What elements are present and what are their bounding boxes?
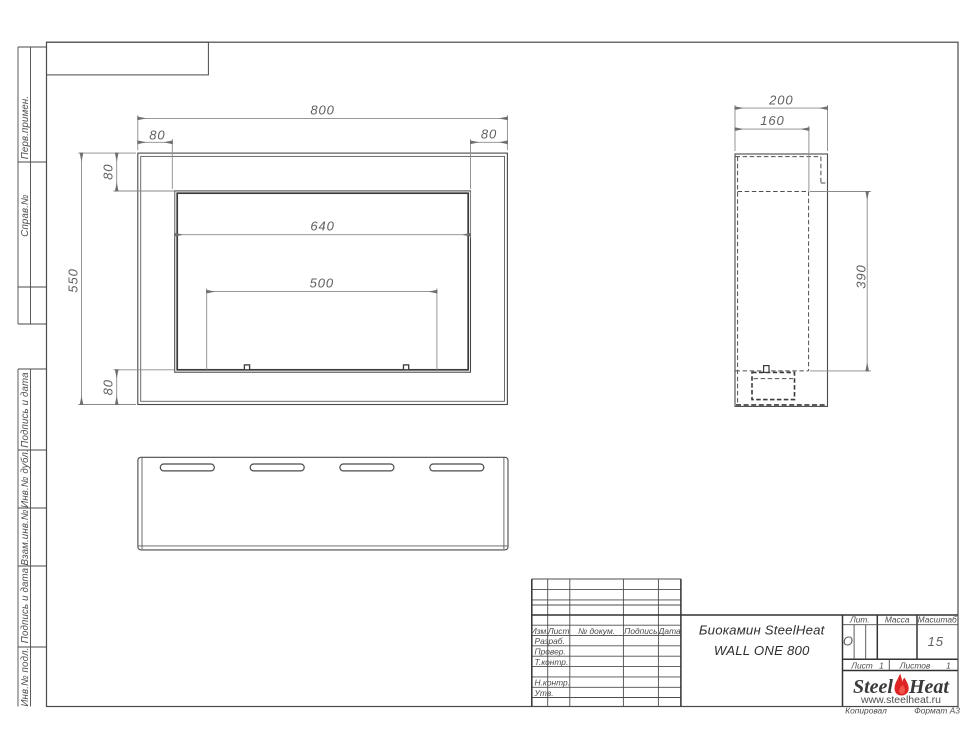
svg-text:80: 80 — [101, 164, 116, 180]
svg-text:www.steelheat.ru: www.steelheat.ru — [860, 694, 941, 706]
svg-text:Разраб.: Разраб. — [535, 636, 565, 646]
svg-text:Т.контр.: Т.контр. — [535, 657, 569, 667]
svg-text:Инв.№ дубл.: Инв.№ дубл. — [20, 449, 31, 508]
svg-text:Биокамин SteelHeat: Биокамин SteelHeat — [699, 623, 826, 638]
svg-text:1: 1 — [879, 660, 884, 670]
svg-text:Лит.: Лит. — [849, 615, 870, 625]
svg-text:1: 1 — [946, 660, 951, 670]
svg-text:Перв.примен.: Перв.примен. — [20, 96, 31, 160]
svg-text:Н.контр.: Н.контр. — [535, 678, 570, 688]
svg-text:Копировал: Копировал — [845, 706, 887, 716]
svg-text:800: 800 — [310, 103, 334, 118]
svg-text:Справ.№: Справ.№ — [20, 194, 31, 237]
svg-text:Дата: Дата — [658, 626, 681, 636]
svg-text:Инв.№ подл.: Инв.№ подл. — [20, 647, 31, 706]
svg-text:Масштаб: Масштаб — [918, 615, 957, 625]
svg-text:Провер.: Провер. — [535, 647, 566, 657]
svg-text:Лист: Лист — [850, 660, 873, 670]
svg-text:500: 500 — [310, 276, 334, 291]
svg-text:О: О — [843, 634, 854, 649]
svg-text:Подпись и дата: Подпись и дата — [20, 372, 31, 448]
svg-text:WALL ONE 800: WALL ONE 800 — [714, 643, 810, 658]
svg-text:Формат А3: Формат А3 — [914, 706, 960, 716]
svg-text:80: 80 — [149, 127, 165, 142]
svg-text:80: 80 — [481, 127, 497, 142]
svg-text:Утв.: Утв. — [534, 688, 554, 698]
svg-text:550: 550 — [66, 268, 81, 292]
svg-text:200: 200 — [768, 92, 793, 107]
svg-text:Изм.: Изм. — [531, 626, 549, 636]
svg-text:15: 15 — [928, 634, 944, 649]
svg-text:Листов: Листов — [899, 660, 931, 670]
svg-text:Подпись: Подпись — [624, 626, 657, 636]
svg-text:Масса: Масса — [885, 615, 910, 625]
svg-text:390: 390 — [854, 264, 869, 288]
svg-text:80: 80 — [101, 379, 116, 395]
svg-text:Подпись и дата: Подпись и дата — [20, 567, 31, 643]
svg-text:Лист: Лист — [547, 626, 570, 636]
svg-text:№ докум.: № докум. — [578, 626, 615, 636]
svg-text:160: 160 — [760, 113, 784, 128]
svg-text:640: 640 — [310, 219, 334, 234]
svg-text:Взам.инв.№: Взам.инв.№ — [20, 509, 31, 565]
